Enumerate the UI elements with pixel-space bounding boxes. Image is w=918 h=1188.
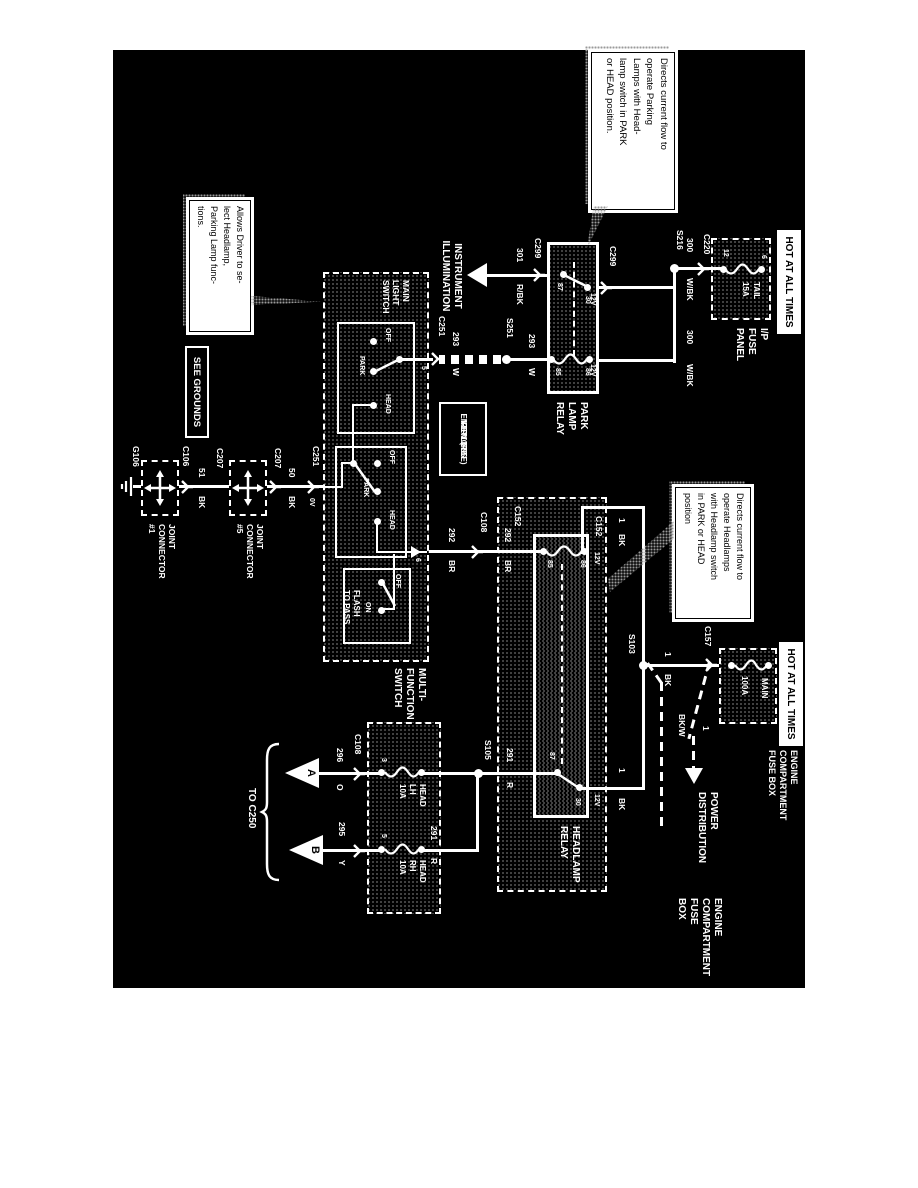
label-line: INSTRUMENT [451, 214, 463, 338]
connector-c299-icon [600, 281, 612, 295]
fuse-name: TAIL [752, 282, 761, 299]
connector-c108-icon [353, 844, 365, 858]
splice-s105-label: S105 [483, 740, 493, 760]
connector-c152-label: C152 [594, 516, 604, 536]
wire-label: BR [503, 560, 513, 572]
connector-c251-label: C251 [437, 316, 447, 336]
to-c250-label: TO C250 [245, 788, 257, 828]
callout-line: with Headlamp switch [707, 493, 720, 613]
connector-c299-label: C299 [533, 238, 543, 258]
label-line: SWITCH [381, 280, 391, 314]
contact-off [370, 338, 377, 345]
label-line: POWER [707, 792, 719, 863]
wire-label: BK [663, 674, 673, 686]
switch-ground-link [323, 486, 343, 488]
eng-fuse-box-small-label: ENGINE COMPARTMENT FUSE BOX [766, 750, 799, 820]
fuse-element-icon [385, 767, 419, 778]
label-line: JOINT [167, 524, 177, 579]
wire-label: W/BK [685, 278, 695, 301]
wire-label: BK [197, 496, 207, 508]
ip-fuse-panel-label: I/P FUSE PANEL [733, 328, 769, 361]
wire-label: W [527, 368, 537, 376]
ground-icon [120, 476, 133, 497]
wire-label: 300 [685, 238, 695, 252]
splice-s216-label: S216 [675, 230, 685, 250]
connector-c106-label: C106 [181, 446, 191, 466]
wire-label: 51 [197, 468, 207, 477]
relay-pin-86-label: 86 [579, 560, 586, 568]
mfs-label: MULTI- FUNCTION SWITCH [391, 668, 427, 720]
scanned-page: HOT AT ALL TIMES 6 12 TAIL 15A I/P FUSE … [0, 0, 918, 1188]
label-line: FUSE [745, 328, 757, 361]
ip-fuse-panel-box [711, 238, 771, 320]
wire-label: 291 [505, 748, 515, 762]
wire-label: O [335, 784, 345, 791]
callout-line: or HEAD position. [603, 58, 617, 204]
label-line: HEADLAMP [569, 826, 581, 883]
label-line: ENGINE [788, 750, 799, 820]
wire-label: 295 [337, 822, 347, 836]
wire-label: BK [287, 496, 297, 508]
offpage-a-letter: A [305, 769, 317, 777]
wire-label: 1 [663, 652, 673, 657]
position-label-park: PARK [362, 478, 369, 497]
relay-internal-link [561, 564, 563, 764]
relay-pin-85-label: 85 [546, 560, 553, 568]
connector-c108-icon [353, 767, 365, 781]
label-line: FUSE [687, 898, 699, 976]
connector-c299-icon [533, 268, 545, 282]
connector-c251-icon [307, 480, 319, 494]
callout-mfs: Allows Driver to se- lect Headlamp, Park… [189, 200, 251, 332]
wire-291-branch [476, 772, 479, 852]
callout-line: lect Headlamp, [220, 206, 233, 326]
label-line: ENGINE [711, 898, 723, 976]
power-dist-arrow-icon [685, 768, 703, 784]
callout-line: position [681, 493, 694, 613]
label-line: I/P [757, 328, 769, 361]
label-line: RH [407, 860, 417, 883]
wire-ground [133, 485, 141, 488]
wire-label: Y [337, 860, 347, 866]
fuse-rating: 100A [740, 676, 749, 695]
label-line: RELAY [553, 402, 565, 435]
label-line: COMPARTMENT [777, 750, 788, 820]
fuse-terminal [378, 769, 385, 776]
relay-coil-icon [553, 354, 587, 365]
label-line: JOINT [255, 524, 265, 579]
fuse-pin-top: 6 [760, 255, 767, 259]
label-line: HEAD [417, 784, 427, 807]
hot-banner-1: HOT AT ALL TIMES [777, 230, 801, 334]
label-line: LIGHT [391, 280, 401, 314]
position-label-head: HEAD [388, 510, 395, 530]
eng-fuse-box-big-label: ENGINE COMPARTMENT FUSE BOX [675, 898, 723, 976]
splice-s103 [639, 661, 648, 670]
diagram-scan-area: HOT AT ALL TIMES 6 12 TAIL 15A I/P FUSE … [113, 50, 805, 988]
label-line: 10A [397, 784, 407, 807]
relay-arm-icon [561, 270, 591, 292]
fuse-rating: 15A [741, 282, 750, 297]
fuse-terminal [378, 846, 385, 853]
connector-c108-label: C108 [479, 512, 489, 532]
ground-g106-label: G106 [131, 446, 141, 467]
relay-pin-86-label: 86 [584, 368, 591, 376]
connector-c152-label: C152 [513, 506, 523, 526]
fuse-head-lh-label: HEAD LH 10A [397, 784, 427, 807]
wire-293 [507, 358, 547, 361]
hot-banner-1-text: HOT AT ALL TIMES [784, 236, 795, 327]
hot-banner-2-text: HOT AT ALL TIMES [786, 648, 797, 739]
wire-label: 293 [451, 332, 461, 346]
relay-pin-30-label: 30 [584, 296, 591, 304]
wire-300-bus [673, 267, 676, 363]
callout-park-relay: Directs current flow to operate Parking … [591, 52, 675, 210]
wire-label: 296 [335, 748, 345, 762]
contact-off [374, 460, 381, 467]
switch-output-link [376, 521, 378, 552]
label-line: #1 [147, 524, 157, 579]
label-line: MULTI- [415, 668, 427, 720]
wire-label: BK [617, 798, 627, 810]
ftp-on-label: ON [364, 602, 371, 613]
volt-label: 12V [593, 794, 600, 806]
c251-pin-6: 6 [414, 558, 421, 562]
label-line: DISTRIBUTION [695, 792, 707, 863]
callout-pointer [608, 518, 674, 592]
callout-line: tions. [194, 206, 207, 326]
label-line: CONNECTOR [157, 524, 167, 579]
label-line: SWITCH [391, 668, 403, 720]
label-line: FUNCTION [403, 668, 415, 720]
splice-s251-label: S251 [505, 318, 515, 338]
wire-291-to-fuse [421, 772, 477, 775]
label-line: RELAY [557, 826, 569, 883]
junction-arrow-icon [411, 546, 421, 558]
relay-coil-icon [546, 546, 582, 557]
wiring-diagram: HOT AT ALL TIMES 6 12 TAIL 15A I/P FUSE … [113, 50, 805, 988]
fuse-pin-3: 3 [380, 758, 387, 762]
wire-pin5-feed [399, 358, 433, 361]
position-label-head: HEAD [384, 394, 391, 414]
label-line: FLASH [351, 590, 361, 624]
label-line: PANEL [733, 328, 745, 361]
head-fuses-box [367, 722, 441, 914]
label-line: CONNECTOR [245, 524, 255, 579]
wire-295 [323, 849, 379, 852]
switch-ground-link [341, 462, 343, 488]
wire-1-bkw [692, 736, 695, 770]
connector-c207-label: C207 [273, 448, 283, 468]
wire-label: R [505, 782, 515, 788]
label-line: #5 [235, 524, 245, 579]
wire-label: 293 [527, 334, 537, 348]
connector-c207-label: C207 [215, 448, 225, 468]
fuse-name: MAIN [760, 678, 769, 698]
callout-pointer [251, 286, 321, 312]
label-line: LH [407, 784, 417, 807]
offpage-b-letter: B [309, 846, 321, 854]
fuse-element-icon [385, 844, 419, 855]
wire-label: 1 [617, 518, 627, 523]
wire-291 [477, 772, 555, 775]
relay-pin-30-label: 30 [574, 798, 581, 806]
connector-c251-label: C251 [311, 446, 321, 466]
callout-line: Parking Lamp func- [207, 206, 220, 326]
connector-c106-icon [181, 480, 193, 494]
joint-connector-1-label: JOINT CONNECTOR #1 [147, 524, 177, 579]
switch-output-link [383, 608, 395, 610]
connector-c220-label: C220 [702, 234, 712, 254]
wire-label: W [451, 368, 461, 376]
wire-label: W/BK [685, 364, 695, 387]
switch-output-link [393, 554, 395, 610]
dashed-continuation-wire [660, 682, 663, 828]
label-line: MAIN [401, 280, 411, 314]
see-grounds-text: SEE GROUNDS [192, 357, 203, 427]
illumination-arrow-icon [467, 263, 487, 287]
callout-head-relay: Directs current flow to operate Headlamp… [675, 487, 751, 619]
label-line: FUSE BOX [766, 750, 777, 820]
callout-line: Directs current flow to [657, 58, 671, 204]
callout-line: Allows Driver to se- [233, 206, 246, 326]
wire-label: 1 [701, 726, 711, 731]
hot-banner-2: HOT AT ALL TIMES [779, 642, 803, 746]
wire-292 [429, 550, 541, 553]
label-line: TO PASS [341, 590, 351, 624]
contact-park [374, 488, 381, 495]
connector-c108-label: C108 [353, 734, 363, 754]
joint-connector-icon [232, 470, 264, 506]
label-line: LAMP [565, 402, 577, 435]
rke-box: REMOTE KEYLESS ENTRY (RKE) [439, 402, 487, 476]
relay-pin-87-label: 87 [548, 752, 555, 760]
splice-s103-label: S103 [627, 634, 637, 654]
joint-connector-5-label: JOINT CONNECTOR #5 [235, 524, 265, 579]
connector-c157-label: C157 [703, 626, 713, 646]
label-line: HEAD [417, 860, 427, 883]
label-line: 10A [397, 860, 407, 883]
connector-c108-icon [471, 545, 483, 559]
fuse-element-icon [735, 660, 767, 671]
position-label-off: OFF [384, 328, 391, 342]
connector-c207-icon [269, 480, 281, 494]
connector-c220-icon [697, 262, 709, 276]
brace-icon [261, 740, 281, 884]
fuse-terminal [728, 662, 735, 669]
wire-label: BK [617, 534, 627, 546]
headlamp-relay-label: HEADLAMP RELAY [557, 826, 581, 883]
connector-c299-label: C299 [608, 246, 618, 266]
label-line: ENTRY (RKE) [458, 413, 468, 464]
callout-line: Lamps with Head- [630, 58, 644, 204]
see-grounds-box: SEE GROUNDS [185, 346, 209, 438]
label-line: COMPARTMENT [699, 898, 711, 976]
wire-label: BK/W [677, 714, 687, 737]
wire-label: 292 [447, 528, 457, 542]
wire-296 [319, 772, 379, 775]
main-light-switch-label: MAIN LIGHT SWITCH [381, 280, 411, 314]
relay-arm-icon [555, 768, 585, 792]
volt-label: 12V [593, 552, 600, 564]
switch-internal-link [353, 404, 373, 406]
wire-label: R/BK [515, 284, 525, 305]
wire-label: 300 [685, 330, 695, 344]
label-line: BOX [675, 898, 687, 976]
position-label-off: OFF [388, 450, 395, 464]
wire-label: 50 [287, 468, 297, 477]
joint-connector-icon [144, 470, 176, 506]
wire-label: 301 [515, 248, 525, 262]
wire-label: 1 [617, 768, 627, 773]
relay-pin-85-label: 85 [554, 368, 561, 376]
wire-label: 292 [503, 528, 513, 542]
power-distribution-label: POWER DISTRIBUTION [695, 792, 719, 863]
callout-line: in PARK or HEAD [694, 493, 707, 613]
contact-park [370, 368, 377, 375]
wire-label: BR [447, 560, 457, 572]
splice-s251 [502, 355, 511, 364]
park-relay-label: PARK LAMP RELAY [553, 402, 589, 435]
fuse-pin-bottom: 12 [722, 249, 729, 257]
callout-line: operate Headlamps [720, 493, 733, 613]
label-line: PARK [577, 402, 589, 435]
position-label-park: PARK [358, 356, 365, 375]
volt-0-label: 0V [308, 498, 315, 507]
callout-line: operate Parking [643, 58, 657, 204]
flash-to-pass-label: FLASH TO PASS [341, 590, 361, 624]
wire-293-hashed [439, 355, 501, 364]
callout-line: lamp switch in PARK [616, 58, 630, 204]
wire-300-drop-86 [597, 359, 676, 362]
callout-line: Directs current flow to [733, 493, 746, 613]
fuse-head-rh-label: HEAD RH 10A [397, 860, 427, 883]
fuse-element-icon [725, 264, 759, 275]
fuse-pin-5: 5 [380, 834, 387, 838]
